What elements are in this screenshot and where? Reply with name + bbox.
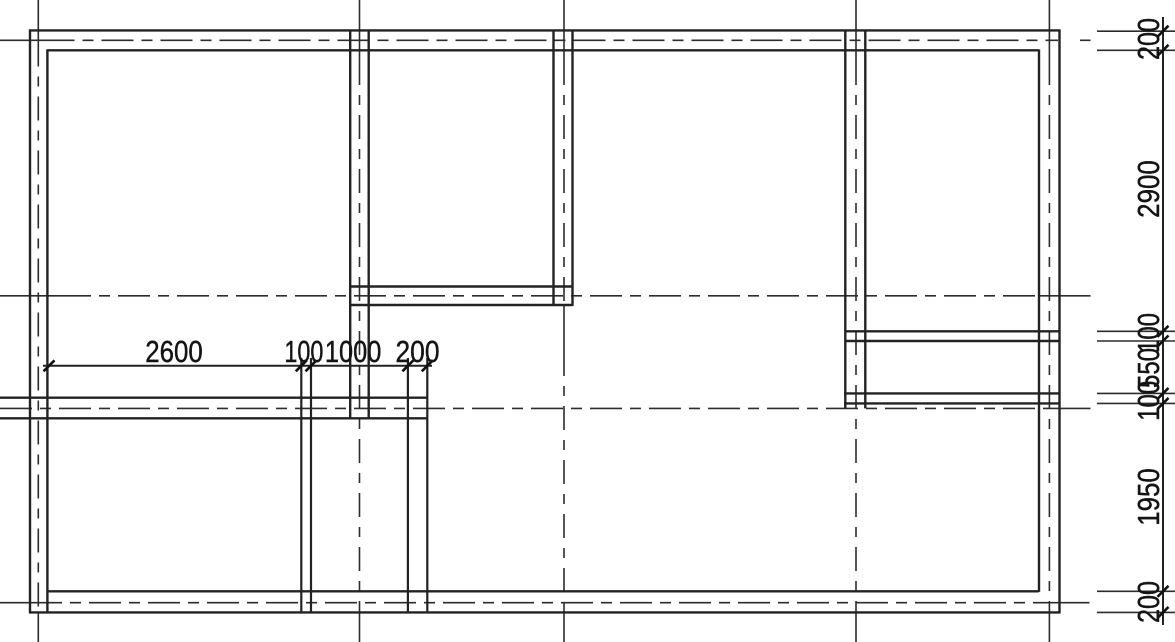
svg-text:1950: 1950	[1131, 468, 1166, 526]
svg-text:200: 200	[396, 334, 440, 369]
svg-text:100: 100	[284, 334, 323, 369]
svg-text:2600: 2600	[145, 334, 203, 369]
svg-text:2900: 2900	[1131, 160, 1166, 218]
svg-text:100: 100	[1131, 313, 1166, 353]
svg-text:200: 200	[1131, 581, 1166, 623]
svg-text:200: 200	[1131, 18, 1166, 60]
svg-text:1000: 1000	[325, 334, 381, 369]
svg-text:100: 100	[1131, 381, 1166, 421]
